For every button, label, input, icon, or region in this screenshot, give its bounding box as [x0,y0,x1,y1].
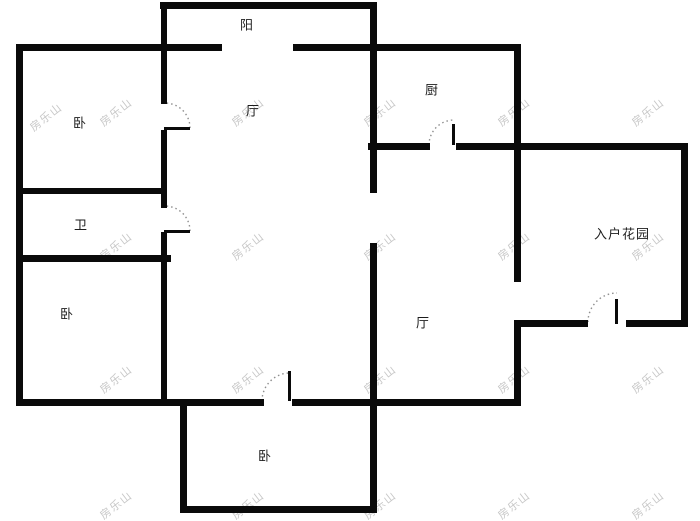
room-label-bedroom-3: 卧 [258,446,272,465]
wall [180,506,377,513]
room-label-entry-garden: 入户花园 [594,224,650,243]
wall [456,143,688,150]
wall [160,2,377,9]
wall [16,44,23,406]
wall [370,2,377,193]
bedroom-1-door-arc [165,103,190,128]
bedroom-3-door-arc [262,373,290,401]
door-leaf [164,127,190,130]
wall [16,399,264,406]
kitchen-door-arc [429,120,454,145]
wall [514,44,521,282]
door-leaf [615,299,618,324]
wall [161,2,167,104]
wall [626,320,688,327]
wall [293,44,521,51]
wall [180,399,187,513]
wall [681,143,688,327]
wall [514,320,588,327]
wall [20,188,166,194]
room-label-dining-room: 厅 [416,313,430,332]
wall [161,130,167,208]
wall [368,143,430,150]
door-leaf [164,230,190,233]
wall [20,255,171,262]
room-label-balcony: 阳 [240,15,254,34]
wall [16,44,222,51]
wall [292,399,521,406]
door-leaf [288,371,291,401]
door-leaf [452,124,455,145]
room-label-bedroom-1: 卧 [73,113,87,132]
wall [370,243,377,513]
room-label-living-room: 厅 [246,101,260,120]
entry-door-arc [588,293,617,322]
room-label-bedroom-2: 卧 [60,304,74,323]
room-label-bathroom: 卫 [74,215,88,234]
bathroom-door-arc [165,206,190,231]
wall [514,320,521,406]
room-label-kitchen: 厨 [425,80,439,99]
floor-plan: 房乐山房乐山房乐山房乐山房乐山房乐山房乐山房乐山房乐山房乐山房乐山房乐山房乐山房… [0,0,700,521]
